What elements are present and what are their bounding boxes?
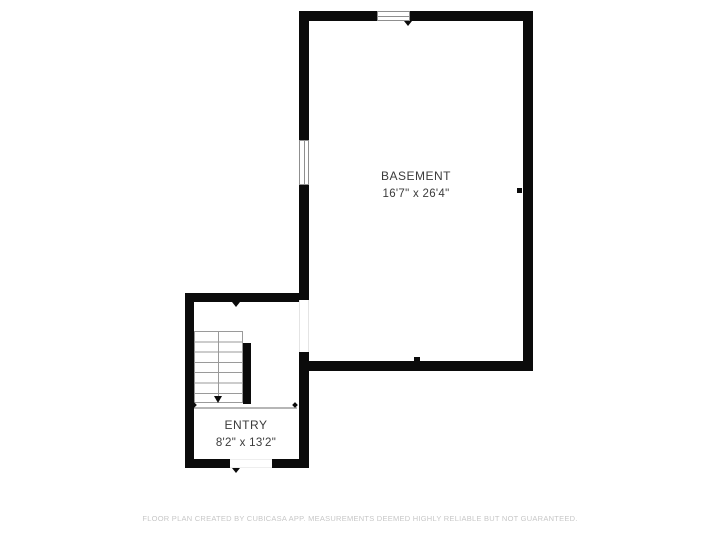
door-opening-basement-entry	[299, 300, 309, 352]
room-label-basement: BASEMENT 16'7" x 26'4"	[316, 169, 516, 201]
stair-direction-arrow-icon	[214, 396, 222, 403]
wall-junction-tick	[404, 21, 412, 26]
wall-junction-tick	[414, 357, 420, 361]
wall-basement-left-middle	[299, 185, 309, 300]
wall-stair-side	[243, 343, 251, 404]
room-name: BASEMENT	[316, 169, 516, 183]
window-icon-top	[377, 11, 410, 21]
wall-entry-top	[185, 293, 309, 302]
stair-area-separator-line	[194, 407, 297, 409]
door-opening-entry-exterior	[230, 459, 272, 468]
window-pane-line	[378, 16, 409, 17]
wall-junction-tick	[232, 302, 240, 307]
room-dimensions: 16'7" x 26'4"	[316, 187, 516, 201]
wall-junction-tick	[304, 185, 308, 188]
wall-junction-tick	[517, 188, 522, 193]
entry-door-tick	[232, 468, 240, 473]
wall-basement-top-right	[410, 11, 533, 21]
floor-plan: BASEMENT 16'7" x 26'4" ENTRY 8'2" x 13'2…	[0, 0, 720, 540]
wall-basement-bottom	[307, 361, 533, 371]
disclaimer-text: FLOOR PLAN CREATED BY CUBICASA APP. MEAS…	[0, 514, 720, 523]
wall-basement-right	[523, 11, 533, 371]
wall-basement-entry-shared	[299, 352, 309, 468]
wall-entry-bottom-right	[272, 459, 309, 468]
wall-basement-top-left	[299, 11, 377, 21]
stair-direction-line	[218, 331, 219, 396]
room-name: ENTRY	[171, 418, 321, 432]
window-pane-line	[304, 141, 305, 184]
room-dimensions: 8'2" x 13'2"	[171, 436, 321, 450]
wall-entry-bottom-left	[185, 459, 230, 468]
room-label-entry: ENTRY 8'2" x 13'2"	[171, 418, 321, 450]
window-icon-left	[299, 140, 309, 185]
wall-basement-left-upper	[299, 11, 309, 140]
